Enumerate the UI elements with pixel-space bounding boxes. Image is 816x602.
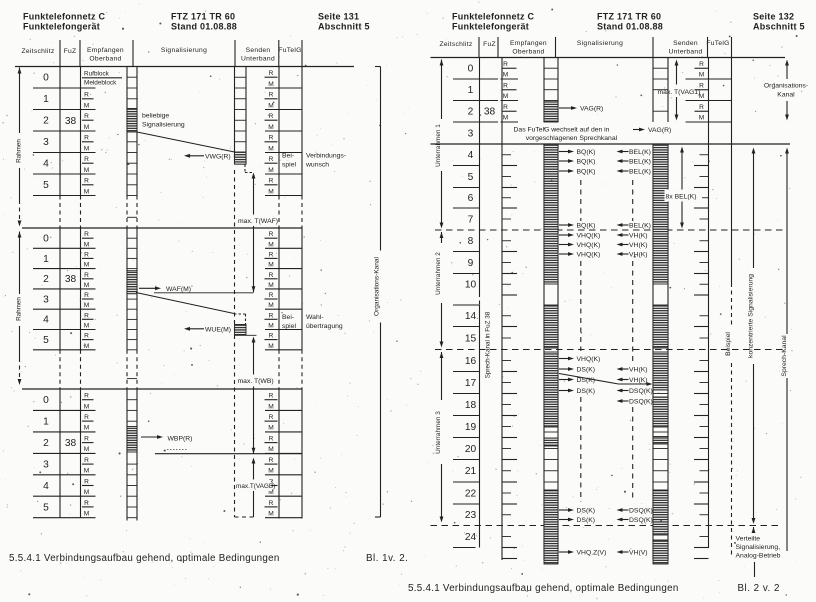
svg-text:BEL(K): BEL(K) <box>629 159 651 166</box>
svg-text:VHQ(K): VHQ(K) <box>577 242 601 249</box>
svg-text:R: R <box>84 333 89 340</box>
svg-text:38: 38 <box>484 107 496 118</box>
svg-text:M: M <box>268 468 274 475</box>
svg-text:konzentrierte Signalisierung: konzentrierte Signalisierung <box>748 274 755 358</box>
svg-text:Rufblock: Rufblock <box>84 71 110 78</box>
svg-text:M: M <box>268 302 274 309</box>
svg-text:Das FuTelG wechselt auf den in: Das FuTelG wechselt auf den in <box>514 127 610 134</box>
svg-text:VAG(R): VAG(R) <box>648 127 671 134</box>
svg-text:Sprech-Kanal: Sprech-Kanal <box>781 335 788 377</box>
svg-text:Empfangen: Empfangen <box>510 40 547 47</box>
svg-text:7: 7 <box>468 214 474 225</box>
svg-text:Bl. 1v. 2.: Bl. 1v. 2. <box>366 553 408 564</box>
svg-text:R: R <box>84 436 89 443</box>
svg-text:Senden: Senden <box>246 47 271 54</box>
svg-text:wunsch: wunsch <box>305 162 329 169</box>
svg-text:R: R <box>269 436 274 443</box>
svg-text:5.5.4.1 Verbindungsaufbau gehe: 5.5.4.1 Verbindungsaufbau gehend, optima… <box>9 553 280 564</box>
svg-text:übertragung: übertragung <box>306 323 343 330</box>
svg-text:max. T(WAF): max. T(WAF) <box>238 218 278 225</box>
svg-text:M: M <box>268 323 274 330</box>
svg-text:M: M <box>268 124 274 131</box>
svg-text:4: 4 <box>468 150 474 161</box>
svg-text:21: 21 <box>465 466 477 477</box>
svg-text:M: M <box>268 282 274 289</box>
svg-text:DSQ(K): DSQ(K) <box>629 517 653 524</box>
svg-text:18: 18 <box>465 400 477 411</box>
svg-text:Funktelefongerät: Funktelefongerät <box>23 22 100 32</box>
svg-text:BQ(K): BQ(K) <box>577 169 596 176</box>
svg-text:beliebige: beliebige <box>142 113 169 120</box>
svg-text:FuTelG: FuTelG <box>278 47 301 54</box>
svg-text:FuZ: FuZ <box>483 41 496 48</box>
svg-text:1: 1 <box>43 254 49 265</box>
svg-text:17: 17 <box>465 378 477 389</box>
svg-text:M: M <box>84 489 90 496</box>
svg-text:R: R <box>84 272 89 279</box>
svg-text:6: 6 <box>468 193 474 204</box>
svg-text:R: R <box>269 113 274 120</box>
svg-text:M: M <box>268 403 274 410</box>
svg-text:Signalisierung: Signalisierung <box>161 47 207 54</box>
svg-text:R: R <box>269 231 274 238</box>
svg-text:R: R <box>269 312 274 319</box>
svg-text:R: R <box>699 61 704 68</box>
svg-text:DS(K): DS(K) <box>577 388 596 395</box>
svg-text:R: R <box>84 92 89 99</box>
svg-text:VH(K): VH(K) <box>629 367 648 374</box>
svg-text:Empfangen: Empfangen <box>87 47 124 54</box>
svg-text:R: R <box>269 457 274 464</box>
svg-text:R: R <box>269 500 274 507</box>
svg-text:spiel: spiel <box>282 323 296 330</box>
svg-text:M: M <box>268 81 274 88</box>
svg-text:VH(V): VH(V) <box>629 550 648 557</box>
svg-text:M: M <box>503 93 509 100</box>
svg-text:M: M <box>84 403 90 410</box>
svg-text:R: R <box>84 457 89 464</box>
svg-text:23: 23 <box>465 510 477 521</box>
svg-text:R: R <box>503 104 508 111</box>
svg-text:10: 10 <box>465 280 477 291</box>
svg-text:M: M <box>84 145 90 152</box>
svg-text:22: 22 <box>465 488 477 499</box>
svg-text:Bei-: Bei- <box>282 152 294 159</box>
svg-text:38: 38 <box>65 438 77 449</box>
svg-text:2: 2 <box>43 274 49 285</box>
svg-text:max.T(VAGB): max.T(VAGB) <box>236 483 275 490</box>
svg-text:BQ(K): BQ(K) <box>577 159 596 166</box>
svg-text:DSQ(K): DSQ(K) <box>629 508 653 515</box>
svg-text:4: 4 <box>43 159 49 170</box>
svg-text:VWG(R): VWG(R) <box>205 153 231 160</box>
svg-text:VAG(R): VAG(R) <box>580 106 603 113</box>
svg-text:R: R <box>84 252 89 259</box>
svg-text:M: M <box>84 468 90 475</box>
svg-text:5: 5 <box>43 335 49 346</box>
svg-text:R: R <box>269 333 274 340</box>
svg-text:Verteilte: Verteilte <box>736 536 761 543</box>
svg-text:M: M <box>84 425 90 432</box>
svg-text:R: R <box>84 113 89 120</box>
svg-text:Signalisierung: Signalisierung <box>577 40 623 47</box>
svg-text:Signalisierung: Signalisierung <box>142 122 185 129</box>
svg-text:M: M <box>699 115 705 122</box>
svg-text:Analog-Betrieb: Analog-Betrieb <box>736 553 781 560</box>
svg-text:BEL(K): BEL(K) <box>629 223 651 230</box>
svg-text:R: R <box>84 231 89 238</box>
svg-text:5: 5 <box>43 180 49 191</box>
svg-text:VH(K): VH(K) <box>629 233 648 240</box>
svg-text:R: R <box>269 272 274 279</box>
svg-text:24: 24 <box>465 532 477 543</box>
svg-text:Rahmen: Rahmen <box>16 139 23 163</box>
svg-text:spiel: spiel <box>282 162 296 169</box>
svg-text:M: M <box>268 446 274 453</box>
svg-text:FTZ 171 TR 60: FTZ 171 TR 60 <box>597 12 661 22</box>
svg-text:Wahl-: Wahl- <box>306 314 324 321</box>
svg-text:1: 1 <box>468 85 474 96</box>
svg-text:Funktelefonnetz C: Funktelefonnetz C <box>23 12 105 22</box>
svg-text:M: M <box>268 343 274 350</box>
svg-text:M: M <box>268 511 274 518</box>
svg-text:Abschnitt 5: Abschnitt 5 <box>318 22 370 32</box>
svg-text:M: M <box>84 282 90 289</box>
svg-text:0: 0 <box>43 395 49 406</box>
svg-text:9: 9 <box>468 258 474 269</box>
svg-text:16: 16 <box>465 356 477 367</box>
svg-text:M: M <box>84 102 90 109</box>
svg-text:0: 0 <box>43 234 49 245</box>
svg-text:Unterrahmen 1: Unterrahmen 1 <box>435 124 442 167</box>
svg-text:VHQ(K): VHQ(K) <box>577 252 601 259</box>
svg-text:M: M <box>503 115 509 122</box>
svg-text:max. T(WB): max. T(WB) <box>238 378 274 385</box>
svg-text:M: M <box>268 145 274 152</box>
svg-text:15: 15 <box>465 333 477 344</box>
svg-text:R: R <box>84 292 89 299</box>
svg-text:max. T(VAG1): max. T(VAG1) <box>658 89 701 96</box>
svg-text:4: 4 <box>43 481 49 492</box>
svg-text:5.5.4.1 Verbindungsaufbau gehe: 5.5.4.1 Verbindungsaufbau gehend, optima… <box>408 583 679 594</box>
svg-text:R: R <box>84 479 89 486</box>
svg-text:VH(K): VH(K) <box>629 377 648 384</box>
svg-text:20: 20 <box>465 444 477 455</box>
svg-text:Meldeblock: Meldeblock <box>84 80 117 87</box>
svg-text:M: M <box>268 262 274 269</box>
svg-text:FTZ 171 TR 60: FTZ 171 TR 60 <box>171 12 235 22</box>
svg-text:M: M <box>84 188 90 195</box>
svg-text:DS(K): DS(K) <box>577 517 596 524</box>
svg-text:BEL(K): BEL(K) <box>629 149 651 156</box>
svg-text:VHQ(K): VHQ(K) <box>577 233 601 240</box>
svg-text:2: 2 <box>43 116 49 127</box>
svg-text:R: R <box>84 156 89 163</box>
svg-text:3: 3 <box>43 460 49 471</box>
svg-text:DS(K): DS(K) <box>577 508 596 515</box>
svg-text:Seite 131: Seite 131 <box>318 12 359 22</box>
svg-text:1: 1 <box>43 94 49 105</box>
svg-text:M: M <box>84 446 90 453</box>
svg-text:0: 0 <box>43 73 49 84</box>
svg-text:M: M <box>268 102 274 109</box>
svg-text:Beispiel: Beispiel <box>725 332 732 356</box>
svg-text:R: R <box>269 252 274 259</box>
svg-text:M: M <box>84 511 90 518</box>
svg-text:VH(K): VH(K) <box>629 252 648 259</box>
svg-text:R: R <box>269 156 274 163</box>
svg-text:R: R <box>269 70 274 77</box>
svg-text:FuZ: FuZ <box>64 48 77 55</box>
svg-text:Unterrahmen 3: Unterrahmen 3 <box>435 411 442 454</box>
svg-text:R: R <box>503 61 508 68</box>
svg-text:Funktelefonnetz C: Funktelefonnetz C <box>452 12 534 22</box>
svg-text:R: R <box>84 135 89 142</box>
svg-text:Zeitschlitz: Zeitschlitz <box>439 41 472 48</box>
svg-text:R: R <box>84 393 89 400</box>
svg-text:3: 3 <box>43 294 49 305</box>
svg-text:Bei-: Bei- <box>282 314 294 321</box>
svg-text:BQ(K): BQ(K) <box>577 223 596 230</box>
svg-text:R: R <box>269 92 274 99</box>
svg-text:VH(K): VH(K) <box>629 242 648 249</box>
svg-text:Verbindungs-: Verbindungs- <box>306 152 346 159</box>
svg-text:R: R <box>503 82 508 89</box>
svg-text:M: M <box>84 262 90 269</box>
svg-text:8x BEL(K): 8x BEL(K) <box>666 194 697 201</box>
svg-text:M: M <box>503 72 509 79</box>
svg-text:Seite 132: Seite 132 <box>753 12 794 22</box>
svg-text:5: 5 <box>43 502 49 513</box>
svg-text:Organisations-: Organisations- <box>764 83 808 90</box>
svg-text:Unterrahmen 2: Unterrahmen 2 <box>435 252 442 295</box>
svg-text:Funktelefongerät: Funktelefongerät <box>452 22 529 32</box>
svg-text:Unterband: Unterband <box>669 49 703 56</box>
svg-text:M: M <box>268 167 274 174</box>
svg-text:Stand 01.08.88: Stand 01.08.88 <box>597 22 663 32</box>
svg-text:Sprech-Kanal in FuZ 38: Sprech-Kanal in FuZ 38 <box>485 311 492 378</box>
svg-text:19: 19 <box>465 422 477 433</box>
svg-text:WBP(R): WBP(R) <box>168 435 193 442</box>
svg-text:Bl. 2 v. 2: Bl. 2 v. 2 <box>738 583 780 594</box>
svg-text:Senden: Senden <box>673 40 698 47</box>
svg-text:DS(K): DS(K) <box>577 367 596 374</box>
svg-text:R: R <box>269 414 274 421</box>
svg-text:R: R <box>84 178 89 185</box>
svg-text:VHQ(K): VHQ(K) <box>577 356 601 363</box>
svg-text:M: M <box>699 72 705 79</box>
svg-text:Kanal: Kanal <box>777 92 795 99</box>
svg-text:Abschnitt 5: Abschnitt 5 <box>753 22 805 32</box>
svg-text:1: 1 <box>43 417 49 428</box>
svg-text:38: 38 <box>65 274 77 285</box>
svg-text:3: 3 <box>468 128 474 139</box>
svg-text:14: 14 <box>465 311 477 322</box>
svg-text:M: M <box>84 302 90 309</box>
svg-text:0: 0 <box>468 64 474 75</box>
svg-text:Zeitschlitz: Zeitschlitz <box>21 48 54 55</box>
svg-text:M: M <box>268 241 274 248</box>
svg-text:M: M <box>84 323 90 330</box>
svg-text:R: R <box>699 104 704 111</box>
svg-text:Organisations-Kanal: Organisations-Kanal <box>374 257 381 316</box>
svg-text:4: 4 <box>43 315 49 326</box>
svg-text:VHQ.Z(V): VHQ.Z(V) <box>577 550 607 557</box>
svg-text:M: M <box>268 425 274 432</box>
svg-text:Unterband: Unterband <box>241 56 275 63</box>
svg-text:BQ(K): BQ(K) <box>577 149 596 156</box>
svg-text:2: 2 <box>468 107 474 118</box>
svg-text:vorgeschlagenen Sprechkanal: vorgeschlagenen Sprechkanal <box>526 135 618 142</box>
svg-text:DSQ(K): DSQ(K) <box>629 388 653 395</box>
svg-text:Stand 01.08.88: Stand 01.08.88 <box>171 22 237 32</box>
svg-text:Oberband: Oberband <box>89 56 121 63</box>
svg-text:Oberband: Oberband <box>512 49 544 56</box>
svg-text:WUE(M): WUE(M) <box>205 327 231 334</box>
svg-text:3: 3 <box>43 137 49 148</box>
svg-text:Rahmen: Rahmen <box>16 297 23 321</box>
svg-text:R: R <box>269 292 274 299</box>
svg-text:BEL(K): BEL(K) <box>629 169 651 176</box>
svg-text:M: M <box>84 124 90 131</box>
svg-text:2: 2 <box>43 438 49 449</box>
svg-text:WAF(M): WAF(M) <box>166 286 191 293</box>
svg-text:38: 38 <box>65 116 77 127</box>
svg-text:DSQ(K): DSQ(K) <box>629 399 653 406</box>
svg-text:R: R <box>269 178 274 185</box>
svg-text:M: M <box>84 241 90 248</box>
svg-text:FuTelG: FuTelG <box>706 40 729 47</box>
svg-text:8: 8 <box>468 236 474 247</box>
svg-text:M: M <box>84 167 90 174</box>
svg-text:R: R <box>84 312 89 319</box>
svg-text:R: R <box>269 393 274 400</box>
svg-text:R: R <box>84 414 89 421</box>
svg-text:Signalisierung,: Signalisierung, <box>736 544 781 551</box>
svg-text:M: M <box>84 343 90 350</box>
svg-text:5: 5 <box>468 172 474 183</box>
